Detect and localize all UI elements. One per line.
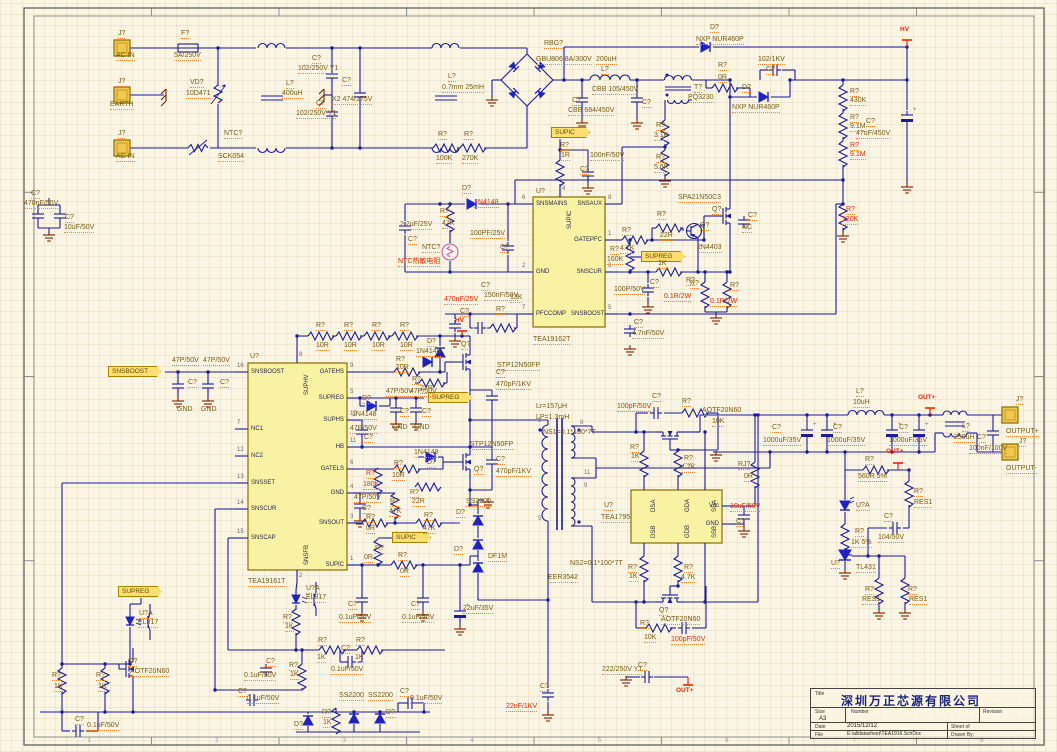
schematic-text: C? — [642, 99, 651, 108]
schematic-text: 10R — [392, 472, 405, 481]
schematic-text: R? — [438, 131, 447, 140]
schematic-text: L? — [962, 423, 970, 432]
schematic-text: L? — [601, 66, 609, 75]
pin-number: 6 — [350, 460, 353, 466]
schematic-text: 47P/50V — [172, 357, 199, 366]
pin-number: 3 — [350, 514, 353, 520]
schematic-text: 47uF/450V — [856, 130, 890, 139]
pin-number: 8 — [299, 352, 302, 358]
schematic-text: C? — [496, 456, 505, 465]
pin-gatehs: GATEHS — [313, 369, 344, 375]
schematic-text: C? — [572, 97, 581, 106]
schematic-text: J? — [118, 30, 125, 39]
schematic-text: T? — [694, 84, 702, 93]
schematic-text: 120K — [842, 216, 858, 225]
schematic-text: R? — [372, 322, 381, 331]
pin-nc2: NC2 — [251, 453, 263, 459]
schematic-text: 2.2uF/25V — [400, 221, 432, 230]
pin-gnd: GND — [313, 490, 344, 496]
pin-suphs: SUPHS — [313, 417, 344, 423]
schematic-text: C? — [342, 77, 351, 86]
schematic-text: R? — [52, 672, 61, 681]
schematic-text: 430K — [850, 97, 866, 106]
schematic-text: EL817 — [306, 594, 326, 603]
schematic-text: D? — [386, 709, 395, 718]
schematic-text: 102/250V Y1 — [298, 65, 338, 74]
schematic-text: 10R — [316, 342, 329, 351]
schematic-text: C? — [884, 513, 893, 522]
pin-number: 16 — [237, 363, 244, 369]
schematic-text: 200uH — [596, 56, 617, 65]
frame-zone: 2 — [215, 738, 218, 745]
pin-number: 14 — [237, 500, 244, 506]
schematic-text: 0R — [364, 554, 373, 563]
schematic-text: 160K — [607, 256, 623, 265]
schematic-text: R? — [850, 88, 859, 97]
pin-number: 13 — [237, 474, 244, 480]
schematic-text: C? — [238, 688, 247, 697]
schematic-text: R? — [914, 488, 923, 497]
schematic-text: C? — [496, 369, 505, 378]
drawn-label: Drawn By: — [951, 732, 974, 738]
schematic-text: 0.1uF/50V — [244, 672, 276, 681]
frame-zone: 7 — [853, 738, 856, 745]
plus-mark: + — [913, 107, 917, 114]
schematic-text: 1R — [561, 152, 570, 161]
schematic-text: R? — [865, 456, 874, 465]
schematic-text: 0R — [744, 473, 753, 482]
schematic-text: SS2200 — [368, 692, 393, 701]
schematic-text: R? — [283, 614, 292, 623]
schematic-text: 10R — [344, 342, 357, 351]
schematic-text: RBG? — [544, 40, 563, 49]
pin-snsboost: SNSBOOST — [571, 311, 602, 317]
schematic-text: 1N4148 — [416, 348, 441, 357]
schematic-text: U?A — [139, 610, 153, 619]
schematic-text: 10K — [712, 418, 724, 427]
schematic-text: C? — [833, 424, 842, 433]
schematic-text: GND — [414, 424, 430, 431]
pin-gda: GDA — [685, 499, 691, 512]
schematic-text: R? — [400, 322, 409, 331]
frame-zone: 1 — [88, 738, 91, 745]
schematic-text: R? — [855, 528, 864, 537]
schematic-text: GBU806 8A/300V — [536, 56, 592, 65]
schematic-text: 1000uF/35V — [827, 437, 865, 446]
revision-label: Revision — [983, 709, 1002, 715]
schematic-text: 100K — [436, 155, 452, 164]
schematic-text: R? — [656, 122, 665, 131]
schematic-text: C? — [341, 645, 350, 654]
schematic-text: Q? — [700, 222, 709, 231]
schematic-text: RJ? — [738, 461, 750, 470]
schematic-text: 0R — [366, 525, 375, 534]
schematic-text: 10K — [644, 634, 656, 643]
pin-snsaux: SNSAUX — [571, 201, 602, 207]
date-value: 2015/12/12 — [847, 723, 877, 729]
pin-gatels: GATELS — [313, 466, 344, 472]
schematic-text: R? — [366, 514, 375, 523]
schematic-text: 3.1K — [654, 132, 668, 141]
schematic-text: R? — [657, 211, 666, 220]
schematic-text: AC IN — [116, 52, 135, 61]
pin-snscur: SNSCUR — [251, 506, 276, 512]
schematic-text: U? — [536, 188, 545, 195]
schematic-text: TEA1795 — [601, 514, 630, 523]
schematic-text: R? — [610, 246, 619, 255]
schematic-text: D? — [427, 338, 436, 347]
schematic-text: C? — [634, 319, 643, 328]
pin-number: 15 — [237, 529, 244, 535]
pin-pfccomp: PFCCOMP — [536, 311, 566, 317]
schematic-text: 1K — [54, 683, 63, 692]
schematic-text: EL817 — [138, 619, 158, 628]
schematic-text: C? — [316, 100, 325, 109]
pin-suphv: SUPHV — [304, 374, 310, 395]
schematic-text: U?A — [856, 502, 870, 511]
schematic-text: 100nF/100V — [969, 445, 1007, 454]
schematic-text: C? — [364, 434, 373, 443]
schematic-text: C? — [400, 408, 409, 417]
schematic-text: 10uH — [853, 399, 870, 408]
schematic-text: NXP NUR460P — [732, 104, 780, 113]
schematic-text: 47K — [442, 220, 454, 229]
schematic-text: 10uF/50V — [730, 503, 760, 512]
pin-snscur: SNSCUR — [571, 269, 602, 275]
schematic-text: 222/250V Y1 — [602, 666, 642, 675]
schematic-text: SS2200 — [466, 498, 491, 507]
schematic-text: NTC? — [422, 244, 440, 253]
schematic-text: 47P/50V — [350, 425, 377, 434]
schematic-text: C? — [31, 190, 40, 199]
schematic-text: 0.1uF/50V — [339, 614, 371, 623]
schematic-text: 0.1uF/50V — [247, 695, 279, 704]
schematic-text: RES1 — [909, 596, 927, 605]
schematic-text: R? — [682, 398, 691, 407]
schematic-text: 1N4148 — [474, 199, 499, 208]
schematic-text: 400uH — [282, 90, 303, 99]
schematic-text: F? — [181, 30, 189, 39]
pin-number: 5 — [608, 305, 611, 311]
pin-gatepfc: GATEPFC — [571, 237, 602, 243]
schematic-text: 1K — [631, 453, 640, 462]
schematic-text: SCK054 — [218, 153, 244, 162]
schematic-text: R? — [865, 586, 874, 595]
schematic-text: R? — [464, 131, 473, 140]
schematic-text: 104/50V — [878, 534, 904, 543]
pin-snsboost: SNSBOOST — [251, 369, 284, 375]
schematic-text: R? — [496, 306, 505, 315]
schematic-text: C? — [772, 424, 781, 433]
schematic-text: U? — [831, 560, 840, 569]
schematic-text: C? — [977, 434, 986, 443]
schematic-text: C? — [266, 658, 275, 667]
schematic-text: 1K — [290, 671, 299, 680]
file-label: File — [815, 732, 823, 738]
schematic-text: NTC热敏电阻 — [398, 258, 440, 267]
pin-number: 4 — [350, 484, 353, 490]
schematic-text: 470pF/1KV — [496, 468, 531, 477]
schematic-text: 10uF/50V — [64, 224, 94, 233]
schematic-text: C? — [652, 393, 661, 402]
schematic-text: U?A — [306, 585, 320, 594]
schematic-text: AOTF20N60 — [702, 407, 741, 416]
schematic-text: R? — [289, 662, 298, 671]
schematic-text: L? — [448, 73, 456, 82]
schematic-text: C? — [460, 308, 469, 317]
schematic-text: RES1 — [862, 596, 880, 605]
schematic-text: SS2200 — [339, 692, 364, 701]
plus-mark: + — [925, 422, 929, 429]
schematic-text: 0.1uF/50V — [402, 614, 434, 623]
pin-supreg: SUPREG — [313, 395, 344, 401]
schematic-text: R? — [690, 280, 699, 289]
schematic-text: C? — [899, 424, 908, 433]
schematic-text: R? — [908, 586, 917, 595]
pin-number: 1 — [608, 231, 611, 237]
schematic-text: NC — [742, 224, 752, 233]
schematic-text: 5 — [538, 516, 541, 523]
schematic-text: 1K — [317, 654, 326, 663]
schematic-text: 100PF/25V — [470, 230, 505, 239]
schematic-text: 5.6K — [654, 164, 668, 173]
schematic-text: J? — [1019, 438, 1026, 447]
pin-number: 9 — [350, 363, 353, 369]
size-label: Size — [815, 709, 825, 715]
schematic-text: R? — [318, 637, 327, 646]
schematic-text: 5A/250V — [174, 52, 201, 61]
pin-nc1: NC1 — [251, 426, 263, 432]
schematic-text: TL431 — [856, 564, 876, 573]
labels-layer: 12345678++++++SNSMAINS6GND2PFCCOMP7SNSAU… — [0, 0, 1057, 752]
schematic-text: R? — [640, 620, 649, 629]
schematic-text: 1K — [285, 623, 294, 632]
schematic-text: U? — [250, 353, 259, 360]
pin-supic: SUPIC — [313, 562, 344, 568]
schematic-text: TEA19161T — [248, 578, 285, 587]
schematic-text: 9.1M — [850, 151, 866, 160]
schematic-text: R? — [560, 142, 569, 151]
schematic-text: 0.1R/2W — [664, 293, 691, 302]
schematic-text: AC IN — [116, 153, 135, 162]
schematic-text: 102/1KV — [758, 56, 785, 65]
schematic-text: 9 — [584, 483, 587, 490]
net-label-supreg: SUPREG — [118, 586, 162, 597]
schematic-text: NS1=0.1*100*7T — [543, 429, 596, 436]
schematic-text: 0.1uF/50V — [87, 722, 119, 731]
schematic-text: 250uH — [954, 434, 975, 443]
schematic-text: CBB 105/450V — [592, 86, 638, 95]
net-label-snsboost: SNSBOOST — [108, 366, 161, 377]
schematic-text: 10R — [372, 342, 385, 351]
schematic-text: D? — [710, 24, 719, 33]
title-block: Title 深圳万正芯源有限公司 Size A3 Number Revision… — [810, 688, 1036, 739]
pin-supic: SUPIC — [567, 211, 573, 229]
schematic-text: 560R 5% — [858, 473, 887, 482]
schematic-text: R? — [718, 62, 727, 71]
schematic-text: R? — [630, 444, 639, 453]
plus-mark: + — [813, 422, 817, 429]
schematic-text: 470pF/1KV — [496, 381, 531, 390]
frame-zone: 5 — [598, 738, 601, 745]
schematic-text: CBB 684/450V — [568, 107, 614, 116]
schematic-text: 102/250V Y1 — [296, 110, 336, 119]
pin-dsb: DSB — [651, 526, 657, 538]
schematic-text: C? — [540, 683, 549, 692]
schematic-text: R? — [850, 114, 859, 123]
schematic-text: 10R — [396, 364, 409, 373]
pin-snscap: SNSCAP — [251, 535, 276, 541]
schematic-text: C? — [766, 66, 775, 75]
schematic-text: Q? — [712, 206, 721, 215]
schematic-text: R? — [356, 637, 365, 646]
schematic-text: 11 — [584, 470, 590, 477]
pin-dsa: DSA — [651, 499, 657, 511]
schematic-text: VD? — [190, 79, 204, 88]
schematic-text: 0R — [400, 568, 409, 577]
title-label: Title — [815, 691, 824, 697]
schematic-text: 10R — [400, 342, 413, 351]
schematic-text: 470nF/50V — [24, 200, 58, 209]
schematic-text: R? — [684, 455, 693, 464]
schematic-text: J? — [118, 78, 125, 87]
schematic-text: R? — [412, 376, 421, 385]
frame-zone: 4 — [470, 738, 473, 745]
frame-zone: 6 — [725, 738, 728, 745]
schematic-text: X2 474/275V — [332, 96, 372, 105]
schematic-text: R? — [366, 470, 375, 479]
schematic-text: Q? — [474, 466, 483, 475]
schematic-text: 1N4148 — [352, 411, 377, 420]
schematic-text: C? — [65, 214, 74, 223]
schematic-text: R? — [684, 564, 693, 573]
schematic-text: 100P/50V — [614, 286, 645, 295]
schematic-text: PQ3230 — [688, 94, 714, 103]
power-port-outplus: OUT+ — [676, 687, 694, 694]
schematic-text: Q? — [128, 658, 137, 667]
net-label-supic: SUPIC — [551, 127, 590, 138]
schematic-text: 10D471 — [186, 90, 211, 99]
schematic-text: GND — [201, 406, 217, 413]
schematic-text: C? — [188, 379, 197, 388]
pin-number: 4 — [562, 186, 565, 192]
schematic-text: 1000uF/35V — [763, 437, 801, 446]
schematic-text: 1K — [98, 683, 107, 692]
schematic-text: 4.7K — [620, 245, 634, 254]
schematic-text: C? — [422, 408, 431, 417]
schematic-text: C? — [312, 55, 321, 64]
schematic-text: C? — [580, 166, 589, 175]
pin-number: 7 — [237, 420, 240, 426]
schematic-text: D? — [454, 546, 463, 555]
schematic-text: 47K — [389, 508, 401, 517]
schematic-text: 100nF/50V — [590, 152, 624, 161]
file-value: E:\alldatasheet\TEA1916.SchDoc — [847, 731, 921, 737]
schematic-text: TEA19162T — [533, 336, 570, 345]
power-port-outplus: OUT+ — [918, 394, 936, 401]
schematic-text: R? — [656, 154, 665, 163]
power-port-hv: HV — [900, 26, 909, 33]
schematic-text: OUTPUT+ — [1006, 428, 1039, 437]
schematic-text: C? — [866, 118, 875, 127]
schematic-text: C? — [650, 279, 659, 288]
schematic-text: 47P/50V — [354, 494, 381, 503]
schematic-text: AOTF20N60 — [130, 668, 169, 677]
schematic-text: R? — [390, 498, 399, 507]
schematic-text: D? — [742, 84, 751, 93]
schematic-text: GND — [177, 406, 193, 413]
pin-number: 2 — [299, 573, 302, 579]
pin-snsset: SNSSET — [251, 480, 275, 486]
schematic-text: C? — [348, 601, 357, 610]
schematic-text: C? — [400, 688, 409, 697]
schematic-text: R? — [398, 552, 407, 561]
schematic-text: C? — [220, 379, 229, 388]
schematic-text: 1K 5% — [851, 539, 872, 548]
pin-snsout: SNSOUT — [313, 520, 344, 526]
schematic-text: R? — [322, 709, 331, 718]
pin-hb: HB — [313, 444, 344, 450]
schematic-text: R? — [846, 206, 855, 215]
schematic-text: 22R — [660, 232, 673, 241]
schematic-text: 470nF/25V — [444, 296, 478, 305]
schematic-text: 47P/50V — [203, 357, 230, 366]
schematic-text: 2 — [538, 418, 541, 425]
schematic-text: 22uF/35V — [463, 605, 493, 614]
schematic-text: C? — [481, 282, 490, 291]
schematic-text: Q? — [461, 341, 470, 350]
schematic-text: 47P/50V — [386, 388, 413, 397]
schematic-text: J? — [1016, 396, 1023, 405]
schematic-text: 22nF/1KV — [506, 703, 537, 712]
schematic-text: EARTH — [110, 101, 134, 110]
pin-number: 11 — [350, 438, 356, 444]
schematic-text: 2N4403 — [697, 244, 722, 253]
pin-gdb: GDB — [685, 525, 691, 538]
schematic-text: RES1 — [914, 499, 932, 508]
schematic-sheet: 12345678++++++SNSMAINS6GND2PFCCOMP7SNSAU… — [0, 0, 1057, 752]
schematic-text: GND — [392, 424, 408, 431]
schematic-text: D? — [362, 395, 371, 404]
number-label: Number — [851, 709, 869, 715]
schematic-text: R? — [375, 545, 384, 554]
pin-number: 1 — [350, 556, 353, 562]
pin-number: 7 — [522, 305, 525, 311]
schematic-text: NXP NUR460P — [696, 36, 744, 45]
pin-number: 8 — [608, 195, 611, 201]
schematic-text: 1K — [629, 573, 638, 582]
schematic-text: 22R — [412, 498, 425, 507]
pin-number: 12 — [237, 447, 244, 453]
schematic-text: D? — [462, 185, 471, 194]
schematic-text: R? — [424, 512, 433, 521]
schematic-text: 270K — [462, 155, 478, 164]
schematic-text: R? — [316, 322, 325, 331]
schematic-text: L? — [286, 80, 294, 89]
schematic-text: 4.7K — [681, 574, 695, 583]
schematic-text: 180K — [363, 481, 379, 490]
pin-number: 2 — [522, 263, 525, 269]
schematic-text: R? — [394, 460, 403, 469]
schematic-text: 13K — [510, 294, 522, 303]
schematic-text: J? — [118, 130, 125, 139]
schematic-text: 47P/50V — [410, 388, 437, 397]
power-port-outplus: OUT+ — [886, 448, 904, 455]
schematic-text: C? — [500, 244, 509, 253]
schematic-text: D? — [456, 509, 465, 518]
schematic-text: 100pF/50V — [617, 403, 651, 412]
schematic-text: C? — [748, 212, 757, 221]
